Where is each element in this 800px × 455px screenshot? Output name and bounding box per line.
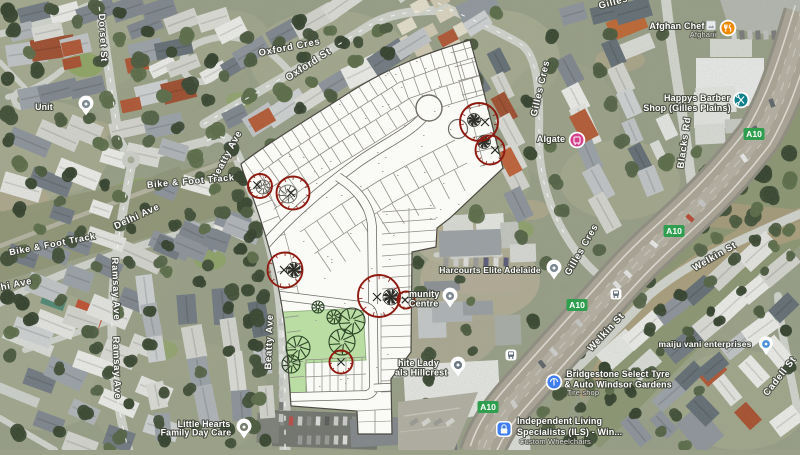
svg-text:Independent Living: Independent Living — [517, 416, 602, 426]
svg-text:Algate: Algate — [537, 134, 565, 144]
svg-text:Unit: Unit — [35, 102, 53, 112]
svg-text:hite Lady: hite Lady — [398, 358, 439, 368]
svg-text:munity: munity — [409, 289, 439, 299]
svg-text:Tire shop: Tire shop — [567, 388, 599, 397]
svg-text:als Hillcrest: als Hillcrest — [395, 368, 447, 378]
svg-text:A10: A10 — [569, 300, 585, 310]
svg-text:Bridgestone Select Tyre: Bridgestone Select Tyre — [566, 369, 670, 379]
svg-text:Beatty Ave: Beatty Ave — [263, 314, 276, 370]
svg-text:A10: A10 — [666, 226, 682, 236]
svg-text:Harcourts Elite Adelaide: Harcourts Elite Adelaide — [439, 265, 541, 275]
svg-text:Shop (Gilles Plains): Shop (Gilles Plains) — [643, 103, 731, 113]
svg-text:maiju vani enterprises: maiju vani enterprises — [658, 339, 751, 349]
svg-text:A10: A10 — [746, 129, 762, 139]
svg-text:Custom Wheelchairs: Custom Wheelchairs — [519, 437, 591, 446]
svg-text:Specialists (ILS) - Win...: Specialists (ILS) - Win... — [517, 427, 622, 437]
svg-text:Ramsay Ave: Ramsay Ave — [109, 257, 122, 320]
svg-text:Happys Barber: Happys Barber — [664, 93, 730, 103]
svg-text:A10: A10 — [480, 402, 496, 412]
svg-text:Ramsay Ave: Ramsay Ave — [110, 336, 123, 399]
svg-text:Family Day Care: Family Day Care — [161, 428, 232, 438]
svg-text:Afghani: Afghani — [690, 30, 717, 39]
svg-text:Centre: Centre — [409, 299, 438, 309]
